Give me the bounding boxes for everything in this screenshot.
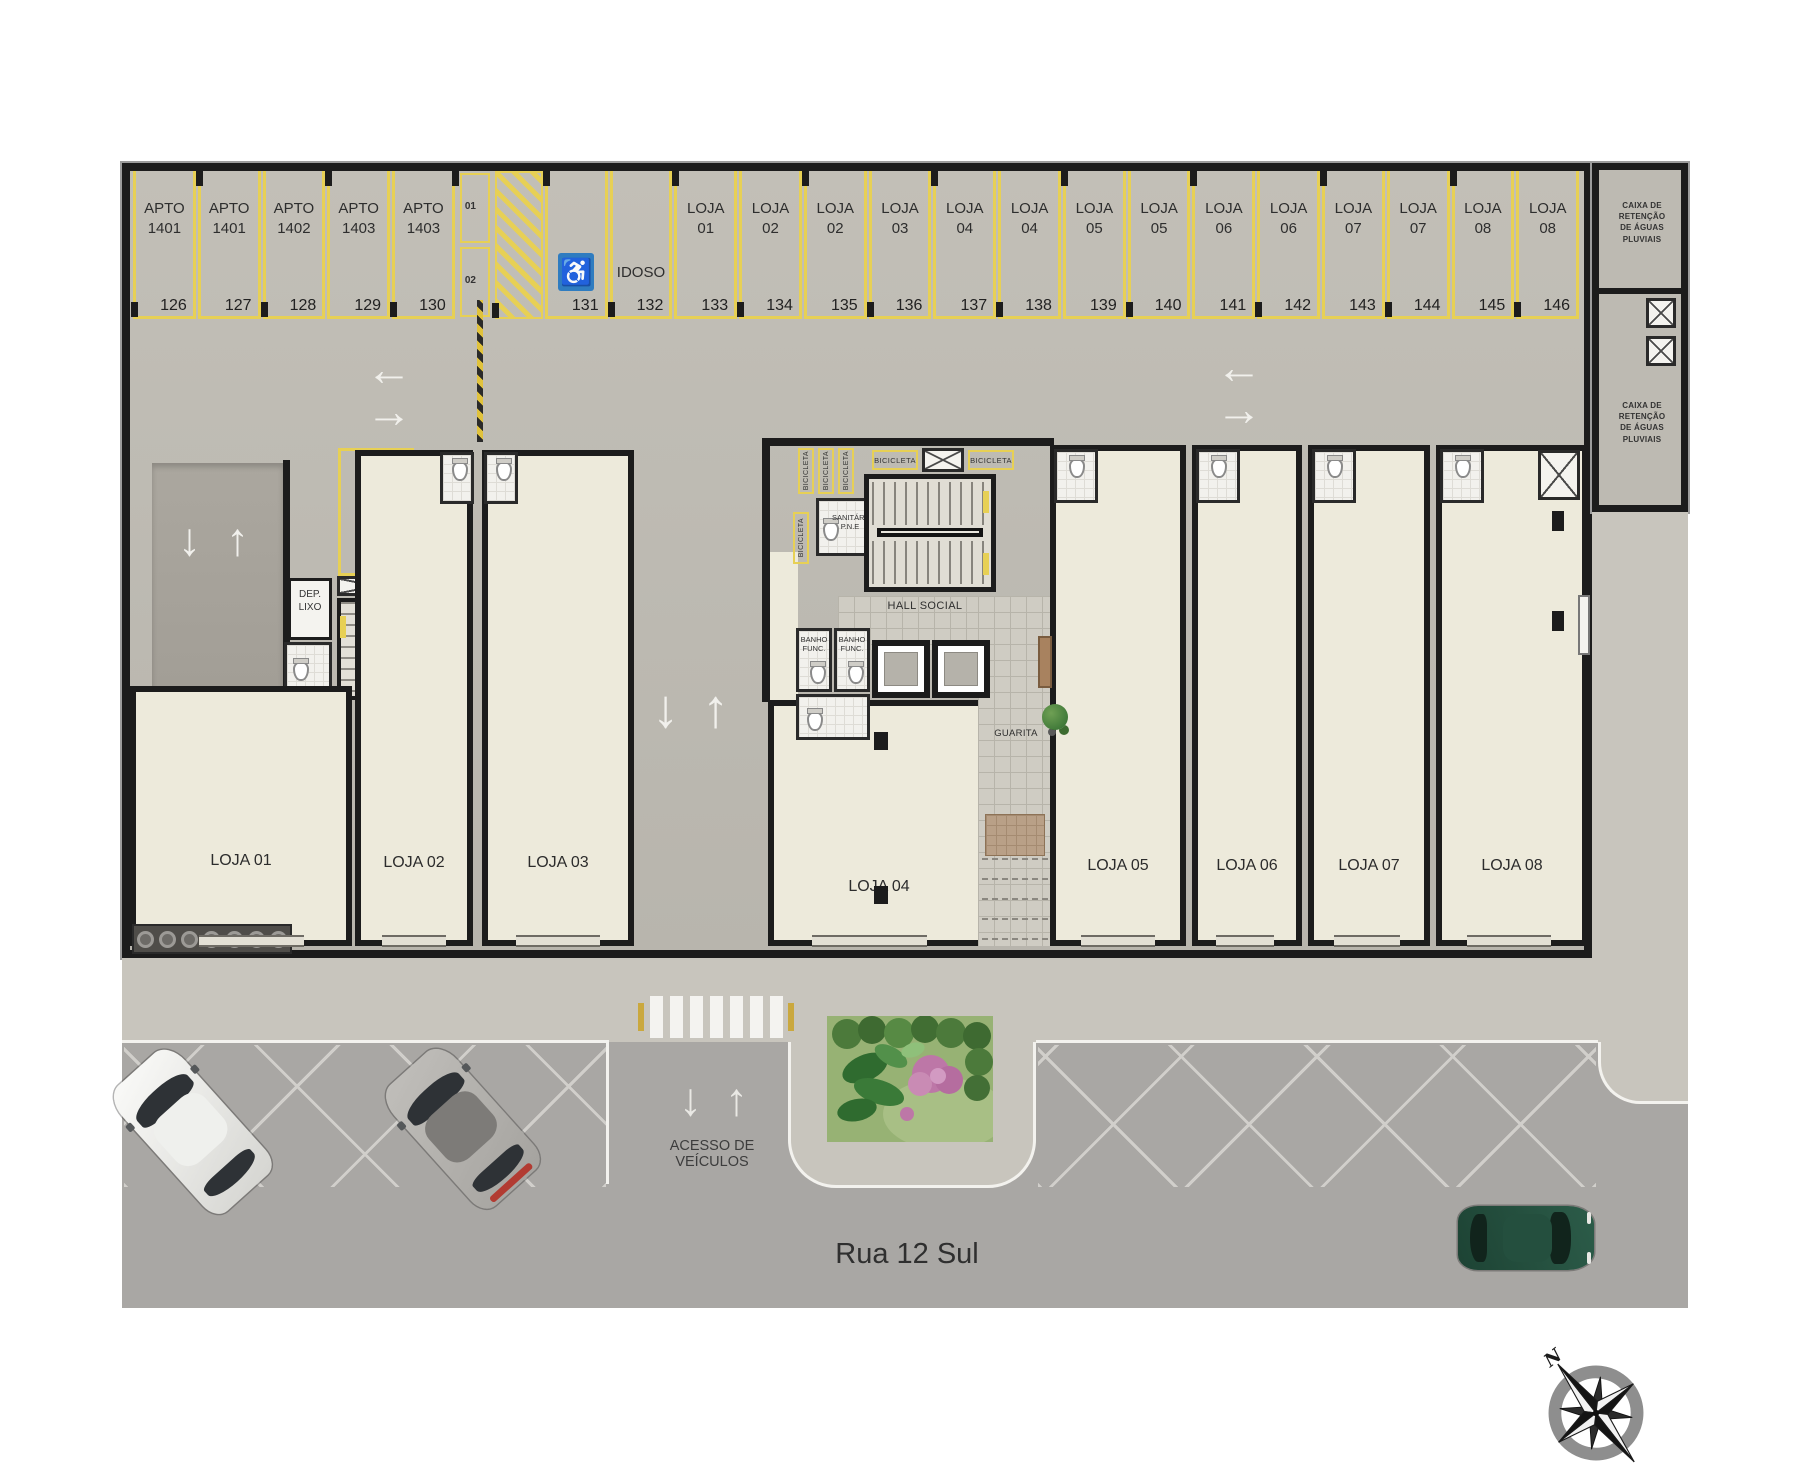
parking-spot-number: 144 [1414,297,1441,315]
parking-spot: LOJA 05140 [1128,171,1191,319]
bike-rack: BICICLETA [968,450,1014,470]
store-label: LOJA 05 [1056,857,1180,875]
storefront-glass [516,935,600,947]
parking-spot-number: 142 [1284,297,1311,315]
parking-spot-number: 131 [572,297,599,315]
store-loja-03: LOJA 03 [482,450,634,946]
parking-spot-label: LOJA 02 [742,199,799,238]
parking-spot-number: 134 [766,297,793,315]
handrail-mark [340,616,346,638]
entry-step [982,858,1048,860]
parking-spot: LOJA 06142 [1257,171,1320,319]
crosswalk-stripe [670,996,683,1038]
car-rear-window [1470,1214,1486,1261]
column [874,732,888,750]
entry-step [982,918,1048,920]
stair-flight [872,482,988,525]
parking-spot: LOJA 02135 [804,171,867,319]
arrow-down-icon: ↓ [679,1076,702,1122]
crosswalk-stripe [750,996,763,1038]
parking-spot-label: APTO 1402 [266,199,323,238]
parking-spot-number: 141 [1220,297,1247,315]
store-loja-08: LOJA 08 [1436,445,1588,946]
store-loja-04-extension [768,552,798,702]
hall-social-label: HALL SOCIAL [845,600,1005,612]
parking-spot-number: 130 [419,297,446,315]
elevator-cab [944,652,978,686]
parking-spot-label: LOJA 04 [1001,199,1058,238]
parking-spot-label: LOJA 02 [807,199,864,238]
parking-spot-number: 140 [1155,297,1182,315]
parking-spot: LOJA 07143 [1322,171,1385,319]
column [1552,511,1564,531]
toilet-icon [848,664,864,684]
guard-desk [1038,636,1052,688]
toilet-icon [1211,458,1227,478]
parking-spot-number: 126 [160,297,187,315]
right-exterior-paving [1592,512,1688,958]
toilet-icon [496,461,512,481]
parking-spot-number: 132 [637,297,664,315]
parking-spot-label: LOJA 03 [872,199,929,238]
crosswalk-stripe [710,996,723,1038]
stair-rail [877,528,983,537]
parking-spot: LOJA 08146 [1516,171,1579,319]
storefront-glass [812,935,928,947]
toilet-icon [807,711,823,731]
storefront-glass [382,935,446,947]
pipe-icon [137,931,154,948]
entry-step [982,878,1048,880]
elevator [872,640,930,698]
parking-spot: APTO 1403129 [327,171,390,319]
parking-spot-number: 138 [1025,297,1052,315]
vehicle-access-driveway: ↓ ↑ ACESSO DE VEÍCULOS [606,1042,788,1184]
moto-box: 01 [460,173,490,243]
caixa-retencao-label-bottom: CAIXA DE RETENÇÃO DE ÁGUAS PLUVIAIS [1600,400,1684,445]
store-loja-05: LOJA 05 [1050,445,1186,946]
sanitario-pne-label: SANITÁRIO P.N.E [832,513,868,532]
parking-spot: APTO 1401127 [198,171,261,319]
garage-ramp [152,463,283,690]
curb-line [122,1040,609,1043]
crosswalk-cap [638,1003,644,1031]
parking-spot: LOJA 07144 [1387,171,1450,319]
acesso-veiculos-label: ACESSO DE VEÍCULOS [639,1138,785,1170]
entry-mat [985,814,1045,856]
arrow-down-icon: ↓ [178,516,201,562]
parking-spot: LOJA 01133 [674,171,737,319]
pipe-icon [159,931,176,948]
crosswalk-stripe [730,996,743,1038]
parking-spot-number: 137 [960,297,987,315]
store-loja-02: LOJA 02 [355,450,473,946]
parking-spot-label: LOJA 04 [936,199,993,238]
crosswalk-cap [788,1003,794,1031]
banho-func-label: BANHO FUNC. [799,635,829,654]
parking-spot-label: APTO 1403 [395,199,452,238]
parking-spot: APTO 1401126 [133,171,196,319]
parking-spot: LOJA 05139 [1063,171,1126,319]
arrow-right-icon: → [1216,386,1262,432]
car-headlight [1587,1212,1591,1224]
store-bathroom [1440,449,1484,503]
street-name-label: Rua 12 Sul [792,1238,1022,1271]
car-windshield [1551,1212,1571,1265]
store-loja-06: LOJA 06 [1192,445,1302,946]
drain-box-icon [1646,336,1676,366]
parking-spot-label: LOJA 08 [1455,199,1512,238]
curb-line [1036,1040,1598,1043]
arrow-down-icon: ↓ [652,682,679,736]
entry-step [982,938,1048,940]
parking-spot-disabled: ♿131 [545,171,608,319]
toilet-icon [810,664,826,684]
compass-north-label: N [1539,1344,1567,1372]
barrier-stripe [477,300,483,442]
parking-spot-number: 135 [831,297,858,315]
parking-spot-label: LOJA 07 [1325,199,1382,238]
parking-spot-label: LOJA 08 [1519,199,1576,238]
storefront-glass [1081,935,1155,947]
shaft-box-icon [922,448,964,472]
bicicleta-label: BICICLETA [970,456,1012,465]
parking-spot-number: 128 [290,297,317,315]
moto-box: 02 [460,247,490,317]
cluster-left-wall [762,438,770,702]
caixa-retencao-label-top: CAIXA DE RETENÇÃO DE ÁGUAS PLUVIAIS [1602,200,1682,245]
car-roof [1503,1214,1552,1263]
handrail-mark [983,491,989,513]
toilet-icon [1069,458,1085,478]
store-bathroom [1196,449,1240,503]
bicicleta-label: BICICLETA [798,518,805,557]
store-label: LOJA 06 [1198,857,1296,875]
service-bathroom [796,694,870,740]
parking-spot-moto: 0102 [457,171,493,319]
bike-rack: BICICLETA [798,448,814,494]
parking-spot-number: 136 [896,297,923,315]
arrow-up-icon: ↑ [226,516,249,562]
handrail-mark [983,553,989,575]
guarita-label: GUARITA [982,728,1050,739]
crosswalk-stripe [690,996,703,1038]
store-label: LOJA 02 [361,854,467,872]
parking-spot: LOJA 06141 [1192,171,1255,319]
store-label: LOJA 03 [488,854,628,872]
arrow-up-icon: ↑ [702,682,729,736]
store-bathroom [440,452,474,504]
parking-spot-number: 133 [701,297,728,315]
parking-spot-label: APTO 1403 [330,199,387,238]
parking-spot: LOJA 04137 [933,171,996,319]
plant-icon [1042,704,1068,730]
parking-spot-label: LOJA 07 [1390,199,1447,238]
bicicleta-label: BICICLETA [823,451,830,490]
column [874,886,888,904]
moto-number: 02 [465,275,476,286]
crosswalk-stripe [770,996,783,1038]
parking-spot: LOJA 02134 [739,171,802,319]
dep-lixo-room: DEP. LIXO [288,578,332,640]
parking-spot: APTO 1403130 [392,171,455,319]
no-parking-hatch [495,171,543,319]
cluster-top-wall [762,438,1054,446]
parking-spot: APTO 1402128 [263,171,326,319]
stair-flight [872,541,988,584]
floor-plan: APTO 1401126APTO 1401127APTO 1402128APTO… [0,0,1800,1480]
banho-func-room: BANHO FUNC. [796,628,832,692]
angled-parking-right [1038,1045,1596,1187]
bike-rack: BICICLETA [793,512,809,564]
annex-wall [1592,288,1688,294]
parking-spot-label: APTO 1401 [201,199,258,238]
parking-spot-label: LOJA 05 [1066,199,1123,238]
store-label: LOJA 07 [1314,857,1424,875]
main-stairs [864,474,996,592]
car-green [1458,1206,1594,1270]
store-label: LOJA 01 [136,852,346,870]
column [1552,611,1564,631]
parking-row: APTO 1401126APTO 1401127APTO 1402128APTO… [132,171,1580,319]
parking-spot-label: LOJA 06 [1195,199,1252,238]
drain-box-icon [1646,298,1676,328]
store-loja-07: LOJA 07 [1308,445,1430,946]
storefront-glass [199,935,304,947]
parking-spot-number: 129 [354,297,381,315]
toilet-icon [1455,458,1471,478]
store-loja-01: LOJA 01 [130,686,352,946]
storefront-glass [1334,935,1400,947]
dep-lixo-label: DEP. LIXO [291,589,329,614]
elevator [932,640,990,698]
storefront-glass [1467,935,1551,947]
parking-spot-label: LOJA 06 [1260,199,1317,238]
parking-spot: LOJA 03136 [869,171,932,319]
parking-spot-number: 143 [1349,297,1376,315]
bicicleta-label: BICICLETA [843,451,850,490]
store-bathroom [1054,449,1098,503]
side-window [1578,595,1590,655]
store-bathroom [484,452,518,504]
arrow-up-icon: ↑ [725,1076,748,1122]
toilet-icon [452,461,468,481]
store-label: LOJA 08 [1442,857,1582,875]
bike-rack: BICICLETA [818,448,834,494]
parking-spot-number: 139 [1090,297,1117,315]
moto-number: 01 [465,201,476,212]
parking-spot-number: 146 [1543,297,1570,315]
bicicleta-label: BICICLETA [803,451,810,490]
crosswalk [636,996,796,1038]
parking-spot-number: 127 [225,297,252,315]
entry-step [982,898,1048,900]
parking-spot-label: LOJA 05 [1131,199,1188,238]
bike-rack: BICICLETA [838,448,854,494]
garden [827,1016,993,1142]
pipe-icon [181,931,198,948]
parking-spot-label: APTO 1401 [136,199,193,238]
car-headlight [1587,1252,1591,1264]
parking-spot-label: IDOSO [613,263,670,283]
bike-rack: BICICLETA [872,450,918,470]
elevator-cab [884,652,918,686]
toilet-icon [1327,458,1343,478]
compass-rose-icon: N [1518,1340,1674,1480]
bicicleta-label: BICICLETA [874,456,916,465]
crosswalk-stripe [650,996,663,1038]
banho-func-label: BANHO FUNC. [837,635,867,654]
parking-spot-idoso: IDOSO132 [610,171,673,319]
elevator-shaft-icon [1538,450,1580,500]
storefront-glass [1216,935,1275,947]
parking-spot-label: LOJA 01 [677,199,734,238]
parking-spot: LOJA 04138 [998,171,1061,319]
toilet-icon [293,661,309,681]
store-bathroom [1312,449,1356,503]
parking-spot: LOJA 08145 [1452,171,1515,319]
banho-func-room: BANHO FUNC. [834,628,870,692]
wheelchair-icon: ♿ [558,253,594,291]
parking-spot-number: 145 [1479,297,1506,315]
arrow-right-icon: → [366,388,412,434]
